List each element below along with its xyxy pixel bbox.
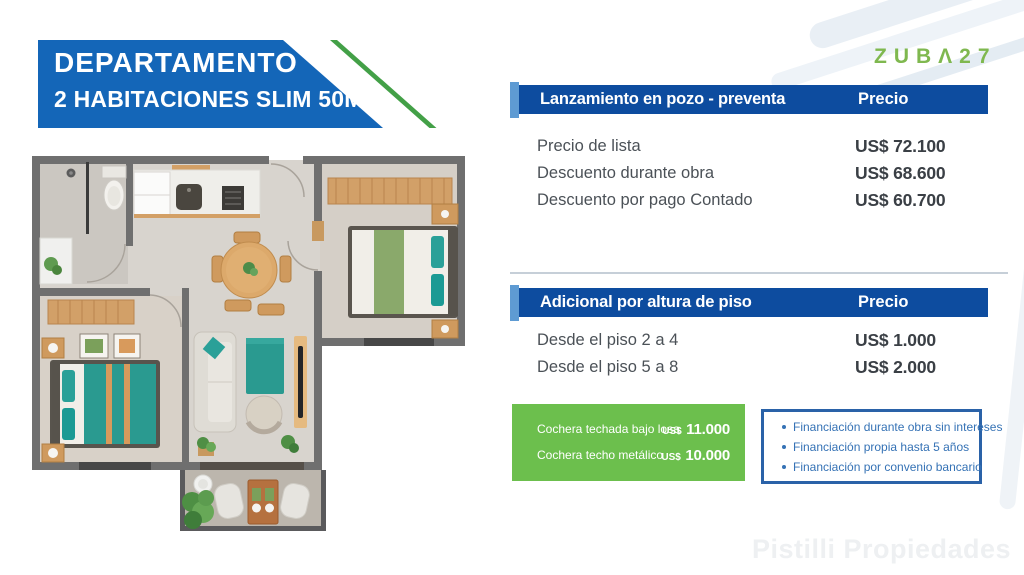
floor-plan-image	[22, 146, 472, 536]
table-header: Lanzamiento en pozo - preventa Precio	[519, 85, 988, 114]
row-label: Desde el piso 5 a 8	[537, 354, 678, 381]
table-header: Adicional por altura de piso Precio	[519, 288, 988, 317]
amount: 11.000	[686, 421, 730, 438]
parking-label: Cochera techo metálico	[537, 446, 663, 465]
title-banner: DEPARTAMENTO 2 HABITACIONES SLIM 50M²	[38, 40, 390, 128]
financing-item: Financiación propia hasta 5 años	[782, 440, 979, 454]
row-value: US$ 2.000	[855, 354, 936, 381]
pricing-table-preventa: Lanzamiento en pozo - preventa Precio Pr…	[510, 85, 1008, 215]
table-row: Descuento durante obra US$ 68.600	[510, 160, 1008, 187]
row-label: Descuento por pago Contado	[537, 187, 753, 214]
financing-text: Financiación propia hasta 5 años	[793, 440, 969, 454]
watermark: Pistilli Propiedades	[752, 534, 1011, 565]
row-label: Precio de lista	[537, 133, 641, 160]
page-title-line2: 2 HABITACIONES SLIM 50M²	[54, 86, 371, 113]
sales-sheet: DEPARTAMENTO 2 HABITACIONES SLIM 50M² ZU…	[0, 0, 1024, 575]
zuba27-logo: ZUBΛ27	[874, 45, 997, 69]
financing-item: Financiación por convenio bancario	[782, 460, 979, 474]
parking-row: Cochera techada bajo losa US$ 11.000	[512, 420, 745, 439]
table-title: Lanzamiento en pozo - preventa	[540, 85, 785, 114]
parking-value: US$ 11.000	[662, 420, 730, 441]
row-value: US$ 72.100	[855, 133, 945, 160]
price-column-header: Precio	[858, 288, 908, 317]
table-title: Adicional por altura de piso	[540, 288, 752, 317]
row-value: US$ 1.000	[855, 327, 936, 354]
bullet-dot	[782, 425, 786, 429]
section-divider	[510, 272, 1008, 274]
bullet-dot	[782, 445, 786, 449]
table-row: Desde el piso 5 a 8 US$ 2.000	[510, 354, 1008, 381]
page-title-line1: DEPARTAMENTO	[54, 47, 298, 79]
amount: 10.000	[685, 447, 730, 464]
financing-box: Financiación durante obra sin intereses …	[761, 409, 982, 484]
table-row: Desde el piso 2 a 4 US$ 1.000	[510, 327, 1008, 354]
currency-symbol: US$	[662, 426, 681, 437]
table-row: Precio de lista US$ 72.100	[510, 133, 1008, 160]
price-column-header: Precio	[858, 85, 908, 114]
row-label: Desde el piso 2 a 4	[537, 327, 678, 354]
table-row: Descuento por pago Contado US$ 60.700	[510, 187, 1008, 214]
financing-text: Financiación por convenio bancario	[793, 460, 982, 474]
parking-row: Cochera techo metálico US$ 10.000	[512, 446, 745, 465]
pricing-table-altura: Adicional por altura de piso Precio Desd…	[510, 288, 1008, 388]
currency-symbol: US$	[661, 452, 680, 463]
parking-value: US$ 10.000	[661, 446, 730, 467]
parking-label: Cochera techada bajo losa	[537, 420, 680, 439]
table-accent-bar	[510, 82, 519, 118]
row-label: Descuento durante obra	[537, 160, 714, 187]
row-value: US$ 68.600	[855, 160, 945, 187]
bullet-dot	[782, 465, 786, 469]
table-accent-bar	[510, 285, 519, 321]
financing-item: Financiación durante obra sin intereses	[782, 420, 979, 434]
row-value: US$ 60.700	[855, 187, 945, 214]
financing-text: Financiación durante obra sin intereses	[793, 420, 1002, 434]
parking-price-box: Cochera techada bajo losa US$ 11.000 Coc…	[512, 404, 745, 481]
